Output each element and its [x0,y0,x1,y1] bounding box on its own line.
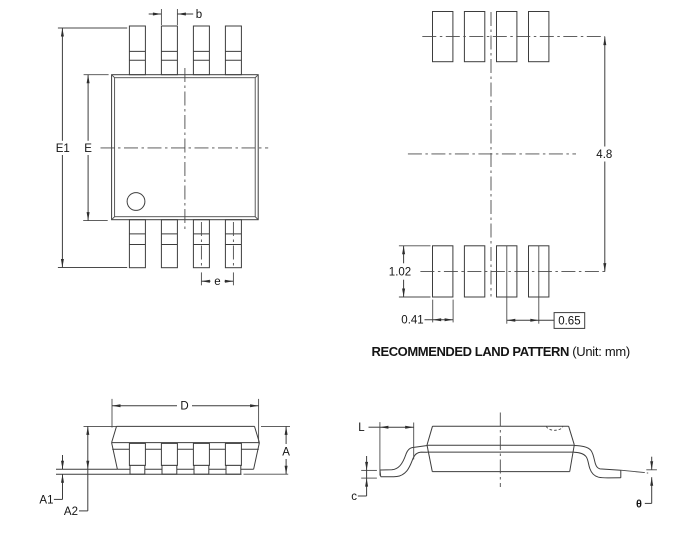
svg-text:A1: A1 [39,494,53,506]
svg-text:0.41: 0.41 [401,315,423,327]
svg-text:e: e [214,276,220,288]
svg-text:θ: θ [636,498,642,510]
svg-text:1.02: 1.02 [389,266,411,278]
svg-text:A2: A2 [64,506,78,518]
svg-text:E1: E1 [56,143,70,155]
svg-text:D: D [180,401,188,413]
svg-text:0.65: 0.65 [558,315,580,327]
svg-text:b: b [196,9,202,21]
svg-text:E: E [84,143,92,155]
svg-text:RECOMMENDED LAND PATTERN (Unit: RECOMMENDED LAND PATTERN (Unit: mm) [372,344,630,359]
svg-text:A: A [282,447,290,459]
svg-text:4.8: 4.8 [596,149,612,161]
svg-text:c: c [351,491,357,503]
svg-text:L: L [358,422,365,434]
